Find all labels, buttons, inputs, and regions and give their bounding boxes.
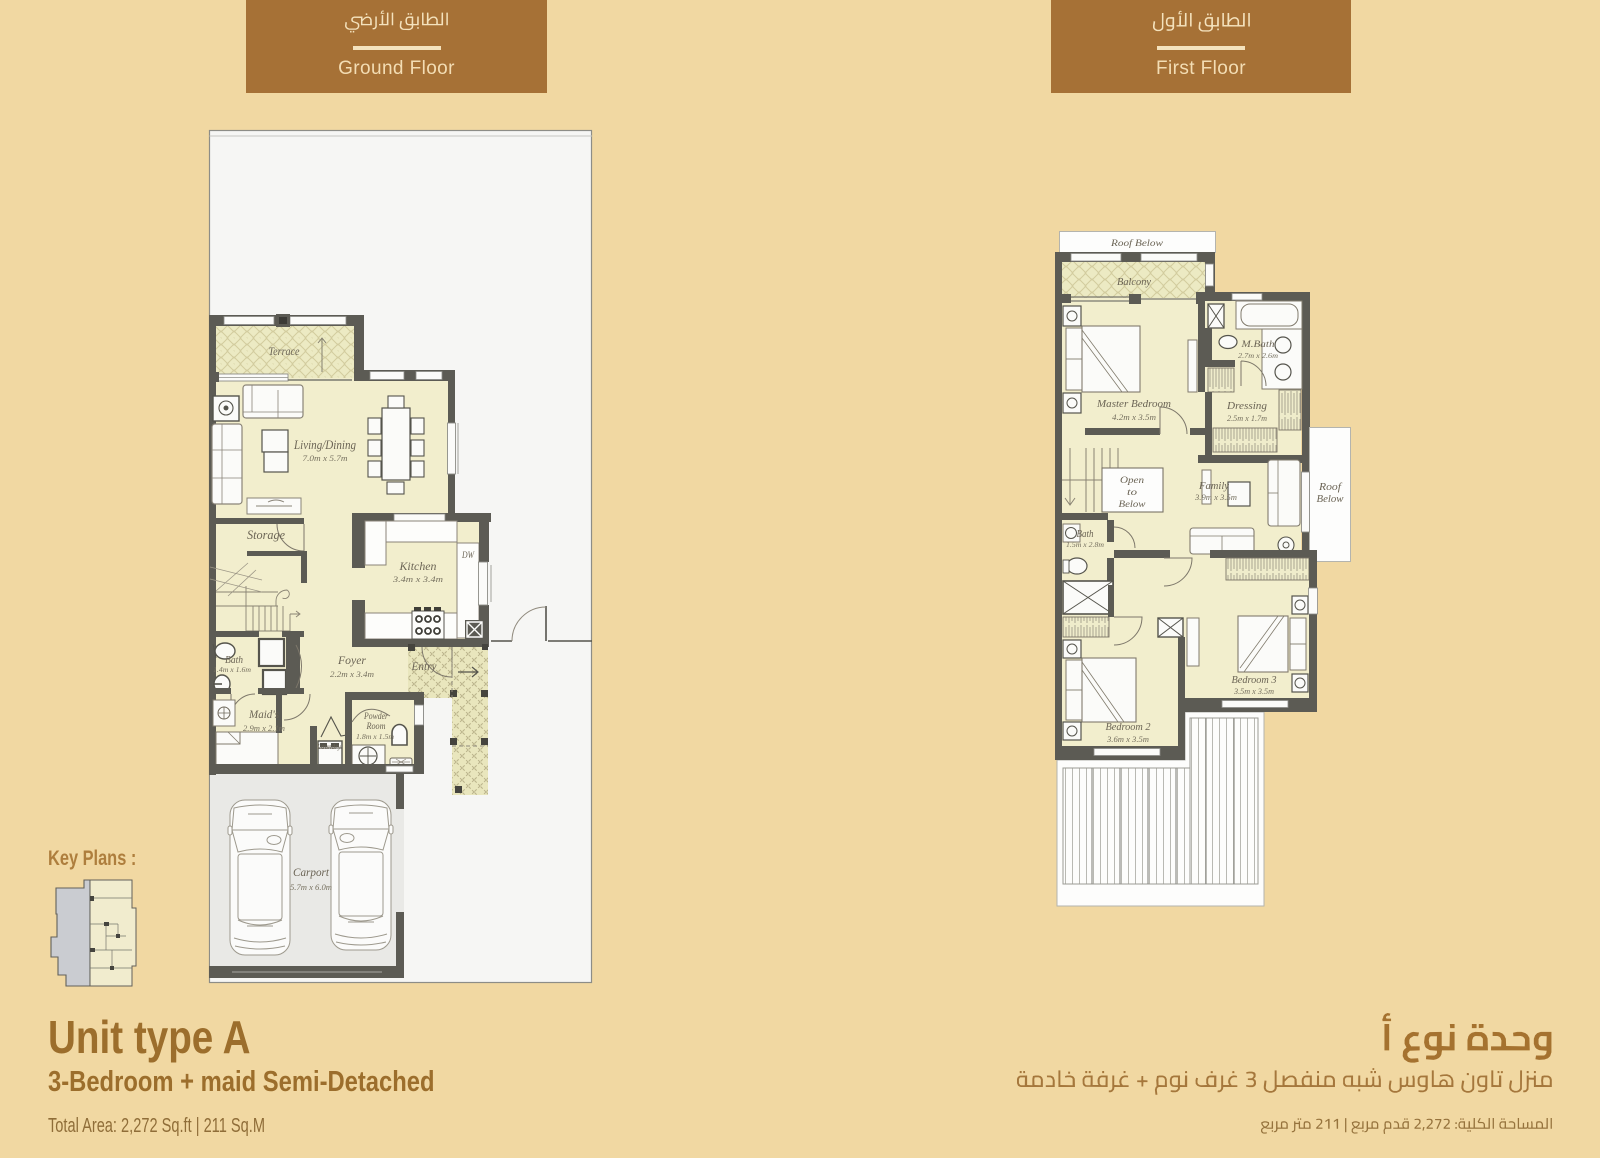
svg-text:Foyer: Foyer (337, 653, 366, 667)
svg-text:DW: DW (461, 550, 475, 560)
svg-text:Living/Dining: Living/Dining (293, 437, 356, 452)
svg-text:3.6m x 3.5m: 3.6m x 3.5m (1106, 735, 1149, 744)
svg-text:Bath: Bath (225, 655, 243, 666)
svg-text:Family: Family (1198, 481, 1229, 492)
svg-text:Bedroom 3: Bedroom 3 (1232, 674, 1277, 686)
svg-text:Maid's: Maid's (248, 707, 279, 721)
svg-text:3.4m x 3.4m: 3.4m x 3.4m (392, 575, 444, 584)
svg-text:Balcony: Balcony (1117, 277, 1151, 288)
svg-text:Powder: Powder (363, 711, 388, 721)
svg-text:Terrace: Terrace (269, 344, 301, 358)
svg-text:1.8m x 1.5m: 1.8m x 1.5m (356, 733, 394, 741)
svg-text:Below: Below (1119, 500, 1147, 510)
svg-text:Master Bedroom: Master Bedroom (1096, 399, 1171, 410)
svg-text:7.0m x 5.7m: 7.0m x 5.7m (303, 453, 348, 463)
svg-text:5.7m x 6.0m: 5.7m x 6.0m (290, 883, 332, 892)
svg-text:Bath: Bath (1077, 529, 1094, 540)
svg-text:to: to (1127, 488, 1137, 498)
svg-text:2.5m x 1.7m: 2.5m x 1.7m (1227, 414, 1267, 423)
svg-text:3.5m x 3.5m: 3.5m x 3.5m (1233, 687, 1274, 696)
svg-text:4.2m x 3.5m: 4.2m x 3.5m (1112, 413, 1156, 422)
svg-text:Roof: Roof (1318, 482, 1343, 493)
svg-text:1.4m x 1.6m: 1.4m x 1.6m (213, 666, 251, 674)
svg-text:M.Bath: M.Bath (1240, 339, 1275, 349)
svg-text:2.2m x 3.4m: 2.2m x 3.4m (330, 670, 374, 679)
svg-text:2.7m x 2.6m: 2.7m x 2.6m (1238, 352, 1278, 360)
svg-text:Laundry: Laundry (316, 742, 342, 751)
svg-text:Below: Below (1317, 494, 1344, 505)
svg-text:Kitchen: Kitchen (398, 561, 436, 573)
svg-text:Storage: Storage (247, 527, 285, 542)
svg-text:Roof Below: Roof Below (1110, 238, 1164, 249)
svg-text:3.9m x 3.5m: 3.9m x 3.5m (1194, 493, 1237, 502)
svg-text:Bedroom 2: Bedroom 2 (1106, 721, 1151, 733)
svg-text:Entry: Entry (411, 659, 438, 673)
svg-text:2.9m x 2.1m: 2.9m x 2.1m (243, 724, 285, 733)
svg-text:Carport: Carport (293, 865, 330, 879)
svg-text:Room: Room (366, 721, 386, 731)
svg-text:1.5m x 2.8m: 1.5m x 2.8m (1066, 541, 1104, 549)
svg-text:Open: Open (1120, 476, 1144, 486)
svg-text:Dressing: Dressing (1226, 401, 1267, 412)
